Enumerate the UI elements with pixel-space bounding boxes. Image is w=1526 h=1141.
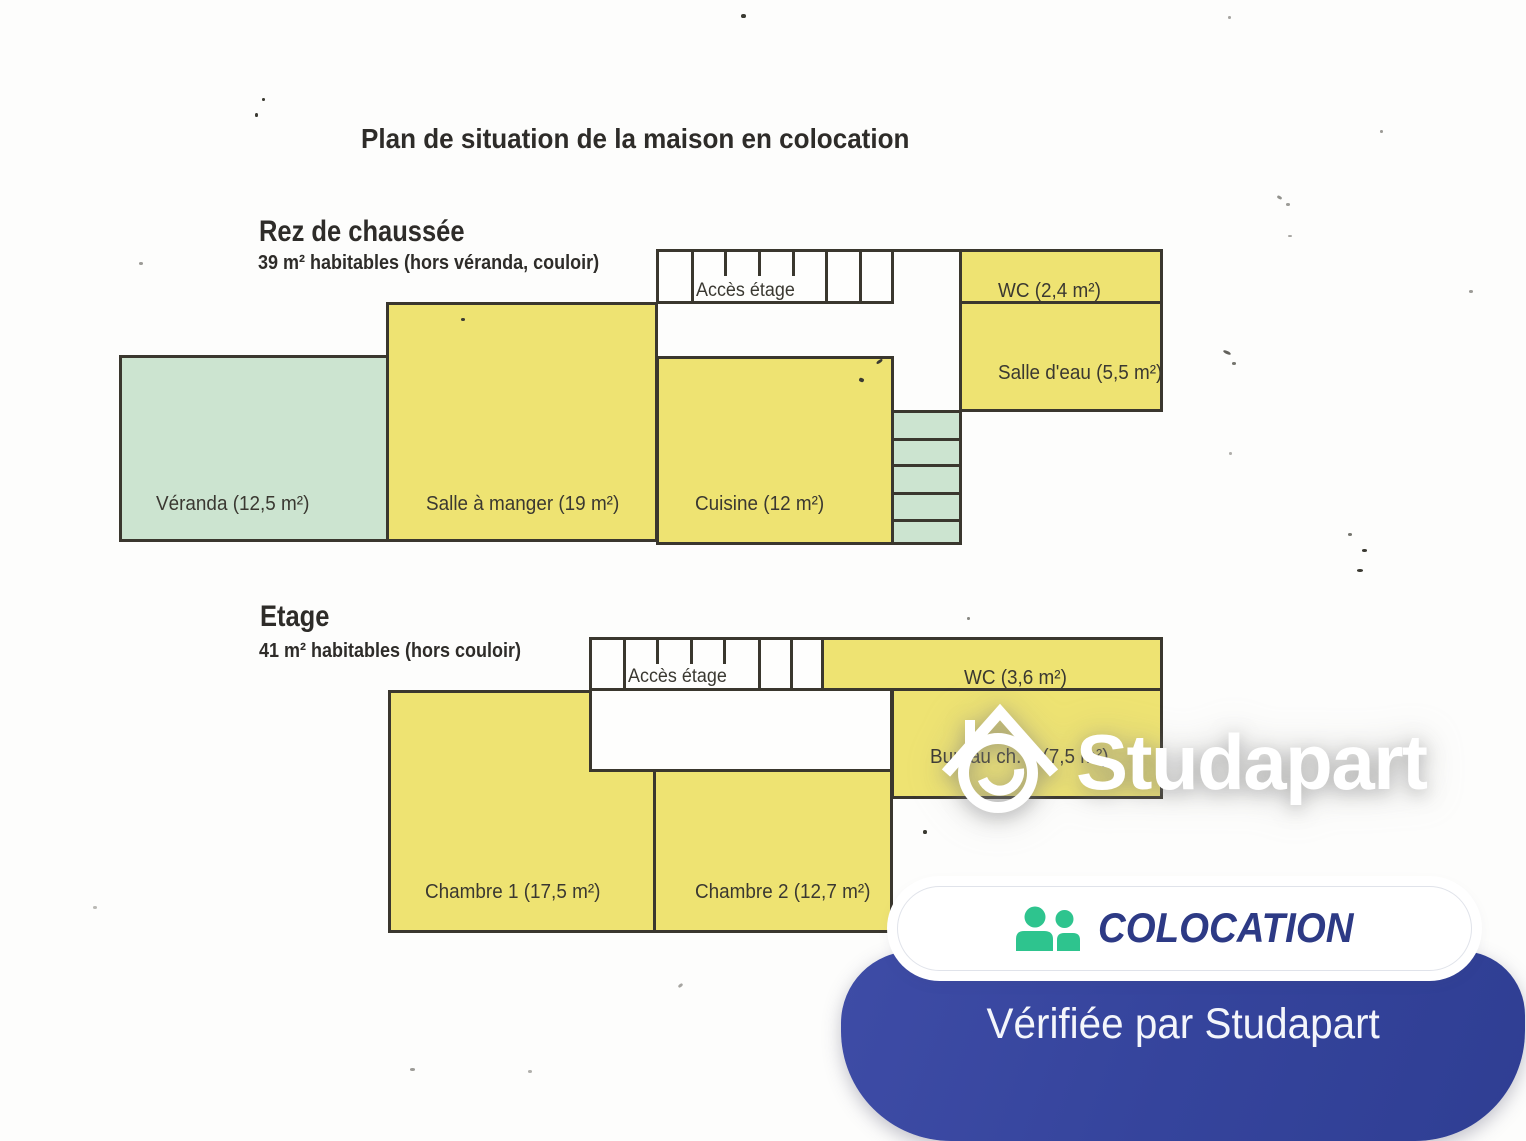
svg-text:Studapart: Studapart (1076, 718, 1428, 806)
